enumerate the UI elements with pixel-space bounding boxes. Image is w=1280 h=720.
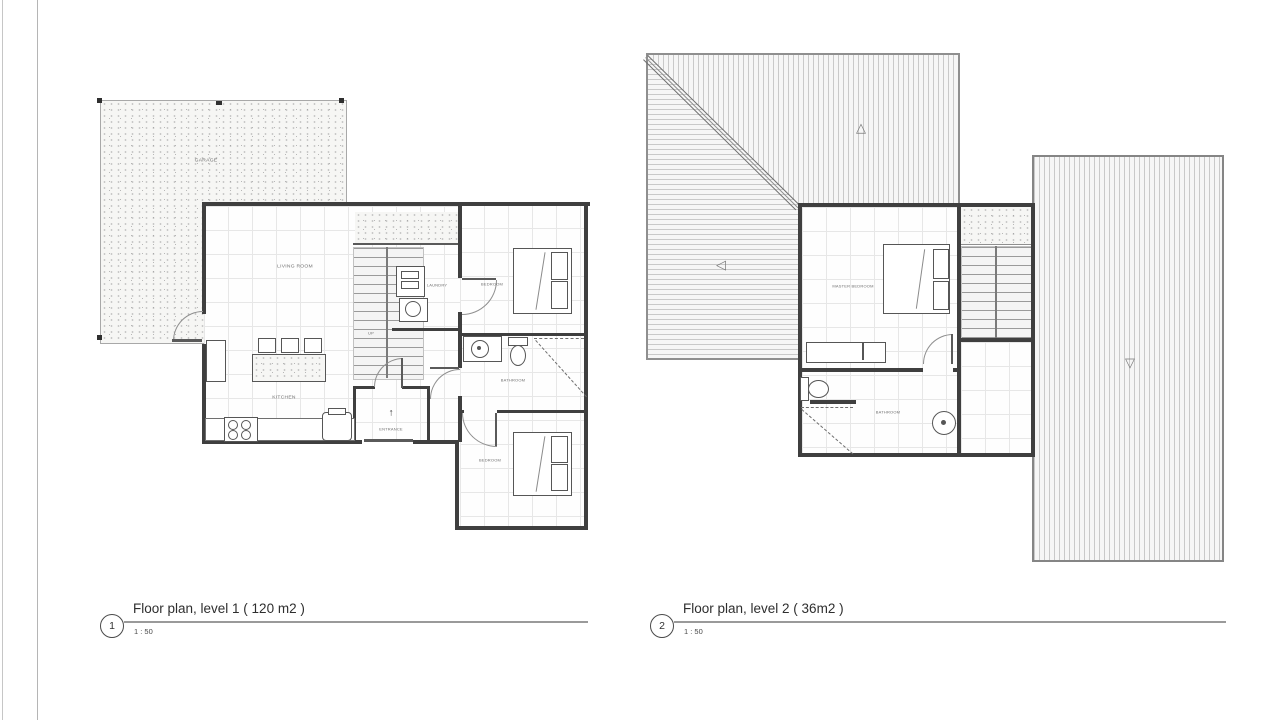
roof-slope-marker-up: △ [856, 120, 866, 136]
heater-slot [401, 271, 419, 279]
wall [497, 410, 584, 413]
bedroom2-door-leaf [495, 413, 497, 446]
staircase-level2 [961, 246, 1033, 340]
entry-arrow-icon: ↑ [389, 408, 394, 419]
plan-number-1: 1 [100, 614, 124, 638]
stairs-up-label: UP [368, 331, 374, 336]
corner-tick [339, 98, 344, 103]
shower-glass [534, 338, 584, 339]
pillow [933, 249, 949, 279]
corridor-floor [961, 342, 1031, 453]
stair-landing [961, 207, 1031, 245]
title-underline-2 [674, 621, 1226, 623]
roof-slope-marker-left: ◁ [716, 257, 726, 273]
roof-edge [958, 53, 960, 205]
sink-drain [477, 346, 481, 350]
wall [798, 368, 923, 372]
plan-title-1: Floor plan, level 1 ( 120 m2 ) [133, 601, 305, 616]
wall [455, 440, 459, 530]
bathroom-door-leaf [430, 367, 459, 369]
pillow [933, 281, 949, 310]
wall [202, 202, 206, 314]
dresser [806, 342, 886, 363]
bar-stool [304, 338, 322, 353]
bedroom-top-label: BEDROOM [481, 282, 503, 287]
master-bedroom-label: MASTER BEDROOM [832, 284, 873, 289]
burner [228, 430, 238, 440]
bedroom-door-leaf [462, 278, 496, 280]
living-room-label: LIVING ROOM [277, 263, 313, 269]
wall [957, 203, 961, 342]
wall [1031, 203, 1035, 457]
pillow [551, 252, 568, 280]
corner-tick [97, 335, 102, 340]
page-edge-line [37, 0, 38, 720]
laundry-wall [392, 328, 460, 331]
wall [413, 440, 459, 444]
master-door-leaf [951, 334, 953, 364]
stair-rail [995, 246, 997, 338]
burner [241, 420, 251, 430]
bathroom-label: BATHROOM [501, 378, 525, 383]
toilet-bowl [510, 345, 526, 366]
bedroom-bottom-label: BEDROOM [479, 458, 501, 463]
wall [584, 202, 588, 530]
pillow [551, 281, 568, 309]
toilet-bowl [808, 380, 829, 398]
wall [458, 312, 462, 368]
wall [458, 396, 462, 442]
roof-slope-marker-down: ▽ [1125, 355, 1135, 371]
wall [455, 526, 588, 530]
entrance-label: ENTRANCE [379, 427, 403, 432]
bar-stool [281, 338, 299, 353]
wall [798, 203, 802, 457]
kitchen-label: KITCHEN [272, 394, 296, 400]
landing-edge [961, 244, 1031, 245]
kitchen-island [252, 354, 326, 382]
roof-edge [646, 53, 960, 55]
heater-slot [401, 281, 419, 289]
kitchen-sink-faucet [328, 408, 346, 415]
laundry-label: LAUNDRY [427, 283, 447, 288]
bar-stool [258, 338, 276, 353]
roof-edge [646, 358, 800, 360]
wall [353, 386, 375, 389]
kitchen-sink [322, 412, 352, 441]
wall [957, 342, 961, 457]
wall [957, 338, 1035, 342]
plan-scale-2: 1 : 50 [684, 627, 703, 636]
corner-tick [216, 101, 222, 105]
shower-glass [801, 407, 853, 408]
washing-machine-drum [405, 301, 421, 317]
garage-label: GARAGE [195, 157, 218, 163]
roof-edge [646, 53, 648, 360]
wall [202, 202, 590, 206]
burner [228, 420, 238, 430]
entrance-door-leaf [401, 358, 403, 388]
sink-drain [941, 420, 946, 425]
corner-tick [97, 98, 102, 103]
plan-scale-1: 1 : 50 [134, 627, 153, 636]
wall [798, 453, 1035, 457]
floor-plan-sheet: GARAGE UP LAUNDRY [0, 0, 1280, 720]
wall [458, 206, 462, 278]
plan-title-2: Floor plan, level 2 ( 36m2 ) [683, 601, 844, 616]
closet-edge [353, 243, 462, 245]
fridge [206, 340, 226, 382]
dresser-divider [862, 343, 864, 360]
garage-door-leaf [172, 339, 202, 342]
title-underline-1 [124, 621, 588, 623]
wall [402, 386, 430, 389]
plan-number-2: 2 [650, 614, 674, 638]
closet-strip [355, 212, 460, 243]
wall [798, 203, 1035, 207]
page-edge-line [2, 0, 3, 720]
wall [810, 400, 856, 404]
pillow [551, 464, 568, 491]
stair-rail [386, 247, 388, 378]
bathroom2-label: BATHROOM [876, 410, 900, 415]
pillow [551, 436, 568, 463]
wall [953, 368, 961, 372]
front-door-leaf [364, 439, 413, 442]
burner [241, 430, 251, 440]
